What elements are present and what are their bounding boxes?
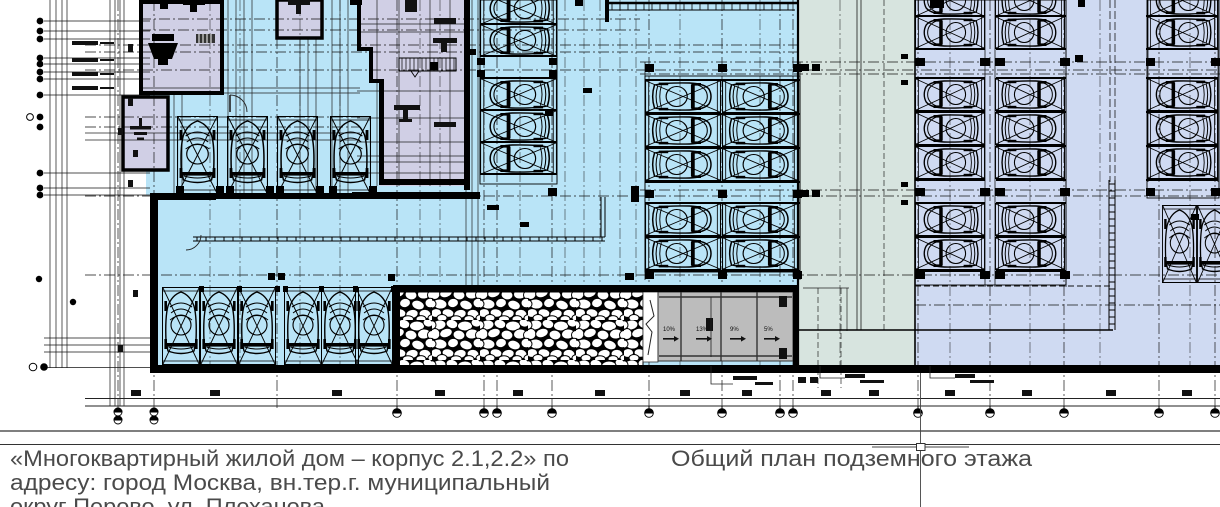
svg-text:10%: 10% (663, 327, 676, 333)
svg-text:Общий план подземного этажа: Общий план подземного этажа (671, 446, 1033, 471)
svg-text:5%: 5% (764, 327, 773, 333)
svg-text:округ Перово, ул. Плеханова: округ Перово, ул. Плеханова (10, 494, 326, 507)
svg-text:9%: 9% (730, 327, 739, 333)
svg-text:13%: 13% (696, 327, 709, 333)
svg-text:«Многоквартирный жилой дом – к: «Многоквартирный жилой дом – корпус 2.1,… (10, 446, 569, 471)
svg-text:адресу: город Москва, вн.тер.г: адресу: город Москва, вн.тер.г. муниципа… (10, 470, 550, 495)
